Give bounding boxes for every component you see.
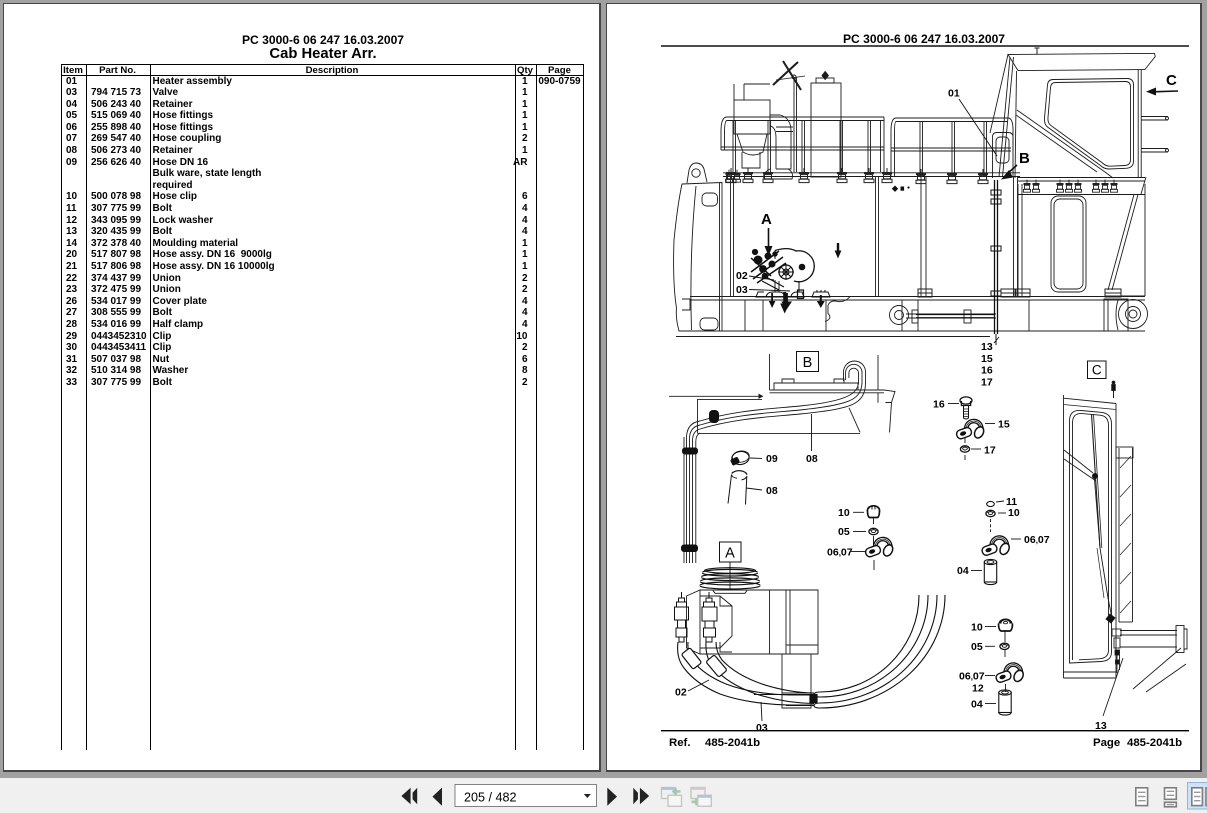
svg-text:06,07: 06,07: [1024, 534, 1050, 546]
svg-text:15: 15: [998, 419, 1010, 431]
svg-text:13: 13: [981, 341, 993, 353]
svg-text:485-2041b: 485-2041b: [705, 737, 760, 749]
svg-text:05: 05: [971, 641, 983, 653]
svg-text:205 / 482: 205 / 482: [464, 791, 517, 805]
svg-text:08: 08: [766, 485, 778, 497]
svg-text:04: 04: [957, 565, 969, 577]
svg-text:B: B: [1019, 150, 1030, 167]
svg-text:17: 17: [984, 445, 996, 457]
svg-text:02: 02: [675, 687, 687, 699]
svg-text:06,07: 06,07: [827, 547, 853, 559]
svg-text:10: 10: [971, 622, 983, 634]
svg-text:04: 04: [971, 699, 983, 711]
svg-text:15: 15: [981, 353, 993, 365]
svg-text:12: 12: [972, 683, 984, 695]
svg-text:02: 02: [736, 270, 748, 282]
svg-text:05: 05: [838, 526, 850, 538]
svg-text:03: 03: [736, 284, 748, 296]
svg-text:A: A: [725, 546, 735, 562]
svg-text:Page: Page: [1093, 737, 1120, 749]
svg-text:485-2041b: 485-2041b: [1127, 737, 1182, 749]
svg-text:A: A: [761, 211, 772, 228]
svg-text:06,07: 06,07: [959, 671, 985, 683]
svg-text:C: C: [1092, 363, 1102, 378]
svg-text:Ref.: Ref.: [669, 737, 691, 749]
svg-text:B: B: [803, 355, 813, 371]
svg-text:10: 10: [1008, 507, 1020, 519]
svg-text:17: 17: [981, 376, 993, 388]
svg-text:09: 09: [766, 453, 778, 465]
svg-text:PC 3000-6 06 247 16.03.2007: PC 3000-6 06 247 16.03.2007: [843, 32, 1005, 46]
svg-text:01: 01: [948, 88, 960, 100]
svg-text:16: 16: [981, 365, 993, 377]
svg-text:03: 03: [756, 722, 768, 734]
svg-text:08: 08: [806, 453, 818, 465]
svg-text:16: 16: [933, 399, 945, 411]
svg-text:10: 10: [838, 507, 850, 519]
svg-text:C: C: [1166, 72, 1177, 89]
svg-text:13: 13: [1095, 720, 1107, 732]
